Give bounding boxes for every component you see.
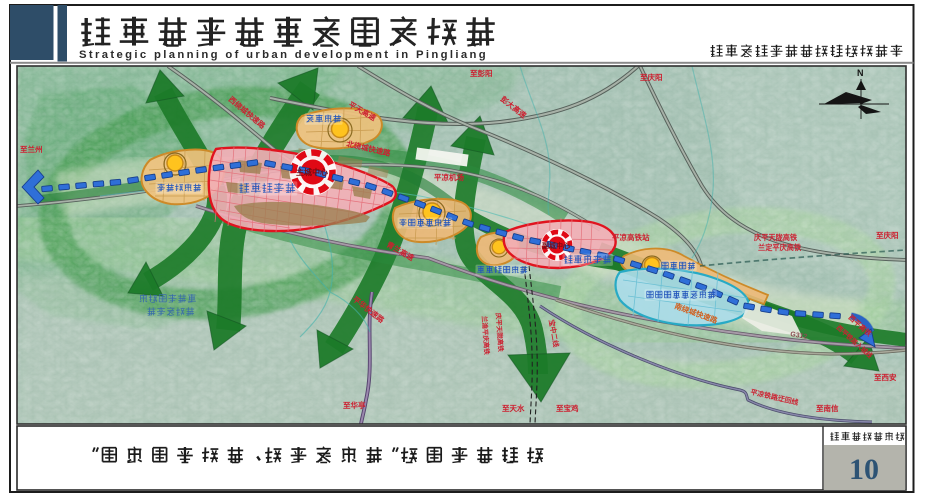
svg-text:平凉机场: 平凉机场 [434, 172, 464, 182]
svg-text:主城中心: 主城中心 [296, 167, 328, 177]
svg-text:至宝鸡: 至宝鸡 [556, 403, 579, 413]
svg-text:N: N [857, 68, 864, 78]
svg-text:至天水: 至天水 [502, 403, 525, 413]
svg-text:副城中心: 副城中心 [542, 241, 570, 250]
svg-text:至西安: 至西安 [874, 372, 897, 382]
svg-text:至庆阳: 至庆阳 [876, 230, 899, 240]
svg-text:庆平天陇高铁: 庆平天陇高铁 [753, 233, 798, 242]
svg-text:兰定平庆高铁: 兰定平庆高铁 [758, 243, 802, 252]
svg-text:至南信: 至南信 [816, 403, 839, 413]
svg-text:至彭阳: 至彭阳 [470, 68, 493, 78]
svg-text:至兰州: 至兰州 [20, 144, 43, 154]
svg-text:10: 10 [849, 453, 879, 486]
svg-text:至庆阳: 至庆阳 [640, 72, 663, 82]
svg-text:至华亭: 至华亭 [343, 400, 366, 410]
svg-text:平凉高铁站: 平凉高铁站 [612, 232, 650, 242]
svg-text:Strategic planning of urban de: Strategic planning of urban development … [79, 49, 488, 61]
